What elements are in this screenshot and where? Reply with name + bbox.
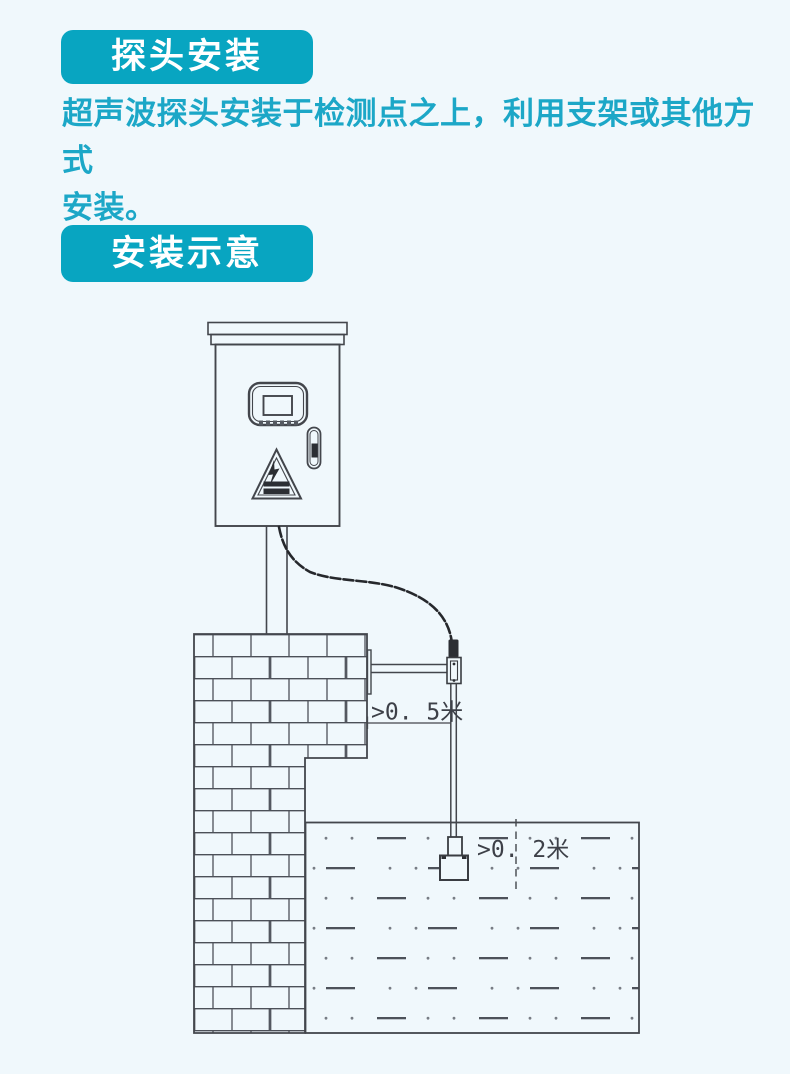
cabinet-roof-bottom [211,335,344,345]
sensor-neck [448,837,462,856]
electric-warning-icon [253,450,302,499]
dimension-wall-clearance: >0. 5米 [368,700,464,730]
clamp-bolt-bottom [453,679,456,682]
cable-connector [449,640,459,658]
sensor-cable [279,527,452,640]
clamp-bolt-top [453,663,456,666]
dimension-label-0-2m: >0. 2米 [477,837,569,863]
dimension-label-0-5m: >0. 5米 [371,700,463,726]
display-screen [264,396,293,415]
water-pattern [306,823,640,1034]
sensor-bolt-right [462,857,467,860]
wall-mount-plate [368,650,372,694]
display-bezel-inner [253,387,304,422]
warning-bar-1 [264,482,290,487]
sensor-clamp [447,640,461,684]
sensor-bolt-left [442,857,447,860]
control-cabinet [208,323,347,527]
display-bezel-outer [249,383,307,425]
page: 探头安装 超声波探头安装于检测点之上，利用支架或其他方式 安装。 安装示意 [0,0,790,1074]
cabinet-roof-top [208,323,347,335]
water-area [306,823,640,1034]
installation-diagram: >0. 5米 >0. 2米 [0,0,790,1074]
warning-bar-2 [264,489,290,495]
wall-bracket [368,650,448,694]
sensor-head [440,856,468,881]
display-panel [249,383,307,426]
handle-lock [312,444,318,458]
door-handle [308,428,321,469]
